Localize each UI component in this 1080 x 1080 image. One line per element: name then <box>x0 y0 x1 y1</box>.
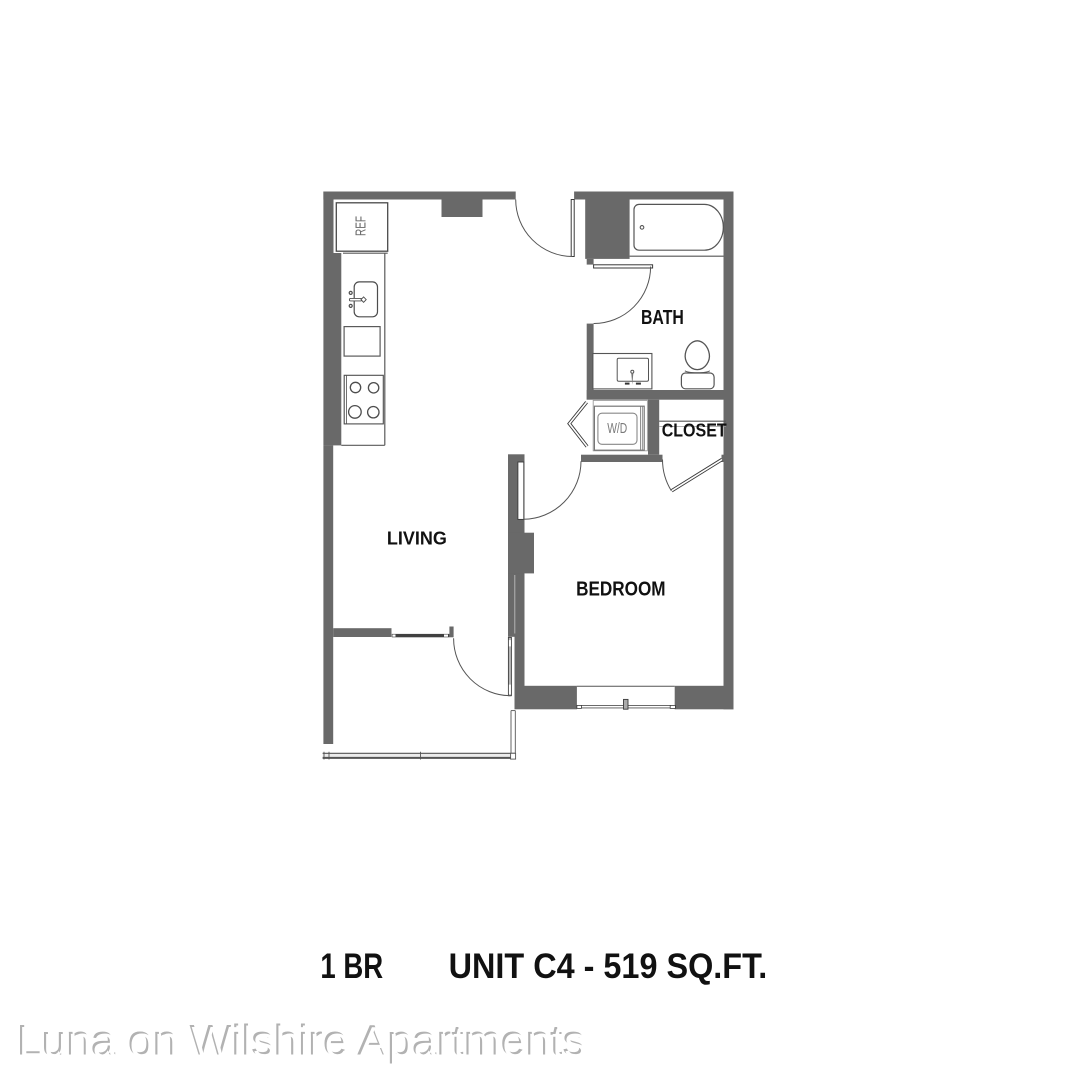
svg-text:1 BR: 1 BR <box>320 946 383 986</box>
svg-text:BATH: BATH <box>641 307 684 329</box>
svg-text:CLOSET: CLOSET <box>662 420 727 440</box>
svg-text:UNIT C4 - 519 SQ.FT.: UNIT C4 - 519 SQ.FT. <box>449 946 768 986</box>
svg-text:REF: REF <box>353 216 370 236</box>
svg-text:Luna on Wilshire Apartments: Luna on Wilshire Apartments <box>19 1020 587 1067</box>
svg-text:LIVING: LIVING <box>387 529 447 550</box>
svg-text:BEDROOM: BEDROOM <box>576 579 666 601</box>
svg-text:W/D: W/D <box>607 421 627 437</box>
